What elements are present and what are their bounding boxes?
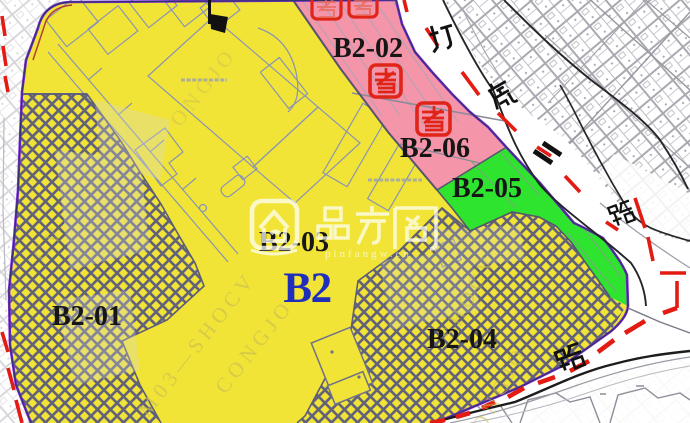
svg-text:B2-01: B2-01 xyxy=(52,301,122,332)
svg-text:B2-05: B2-05 xyxy=(452,173,522,204)
svg-text:pinfangw.cn: pinfangw.cn xyxy=(325,248,412,260)
svg-text:B2-02: B2-02 xyxy=(333,33,403,64)
svg-text:B2: B2 xyxy=(283,265,330,312)
svg-text:B2-06: B2-06 xyxy=(400,133,470,164)
svg-text:B2-04: B2-04 xyxy=(427,324,497,355)
